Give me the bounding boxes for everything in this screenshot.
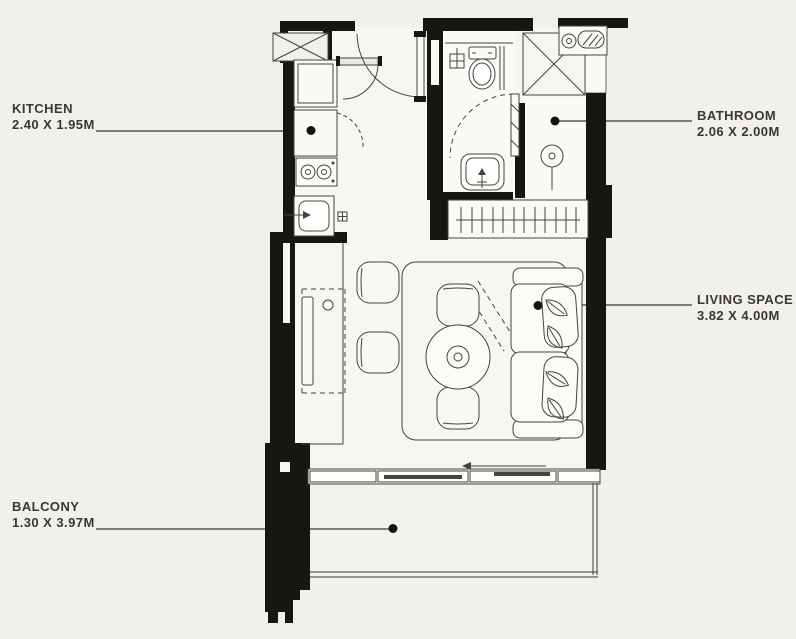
balcony-label: BALCONY 1.30 X 3.97M	[12, 499, 95, 531]
sofa-icon	[511, 268, 583, 438]
bathroom-leader-dot	[551, 117, 560, 126]
floor-plan-drawing	[0, 0, 796, 639]
floor-plan-page: KITCHEN 2.40 X 1.95M BATHROOM 2.06 X 2.0…	[0, 0, 796, 639]
wardrobe-icon	[448, 200, 588, 238]
bathroom-label: BATHROOM 2.06 X 2.00M	[697, 108, 780, 140]
bathroom-sink-icon	[461, 154, 504, 190]
stove-icon	[296, 158, 337, 186]
toilet-icon	[469, 47, 496, 89]
living-space-label: LIVING SPACE 3.82 X 4.00M	[697, 292, 793, 324]
fridge-icon	[294, 60, 337, 107]
bathroom-name: BATHROOM	[697, 108, 780, 124]
kitchen-leader-dot	[307, 126, 316, 135]
kitchen-dimensions: 2.40 X 1.95M	[12, 117, 95, 133]
balcony-name: BALCONY	[12, 499, 95, 515]
bathroom-dimensions: 2.06 X 2.00M	[697, 124, 780, 140]
kitchen-name: KITCHEN	[12, 101, 95, 117]
balcony-leader-dot	[389, 524, 398, 533]
outlet-icon	[338, 212, 347, 221]
kitchen-label: KITCHEN 2.40 X 1.95M	[12, 101, 95, 133]
living-leader-dot	[534, 301, 543, 310]
balcony-dimensions: 1.30 X 3.97M	[12, 515, 95, 531]
living-space-dimensions: 3.82 X 4.00M	[697, 308, 793, 324]
water-heater-icon	[559, 26, 607, 55]
shaft-left-icon	[273, 33, 328, 61]
living-space-name: LIVING SPACE	[697, 292, 793, 308]
dining-table-icon	[426, 325, 490, 389]
